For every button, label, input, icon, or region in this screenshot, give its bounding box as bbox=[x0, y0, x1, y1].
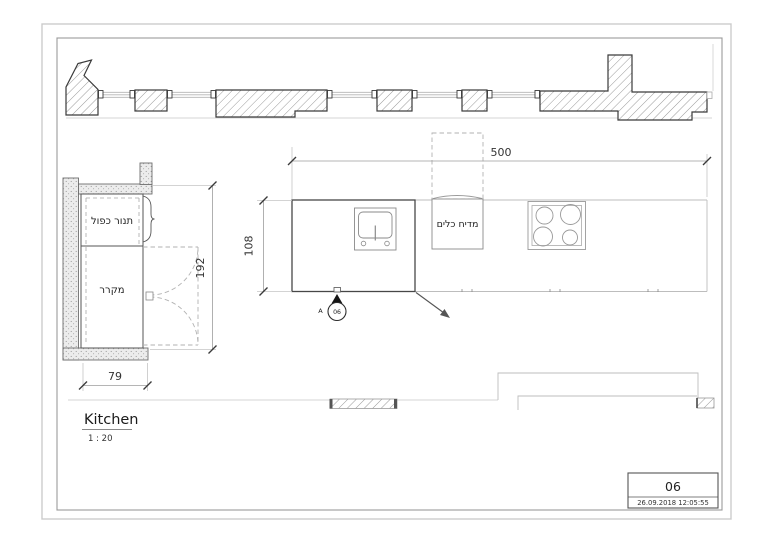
view-scale-text: 1 : 20 bbox=[88, 434, 113, 444]
hood-dashed-unit bbox=[432, 133, 483, 199]
dim-192: 192 bbox=[150, 182, 217, 354]
sink-symbol bbox=[355, 208, 397, 250]
title-block: 06 26.09.2018 12:05:55 bbox=[628, 473, 718, 508]
kitchen-plan-svg: תנור כפול מקרר מדיח כלי bbox=[0, 0, 768, 543]
fridge-door-swing bbox=[143, 247, 198, 345]
dim-79-text: 79 bbox=[108, 370, 122, 383]
window-3 bbox=[328, 91, 377, 99]
cooktop-symbol bbox=[528, 202, 586, 250]
sheet-number: 06 bbox=[665, 479, 681, 494]
view-title-text: Kitchen bbox=[84, 412, 139, 428]
window-2 bbox=[168, 91, 216, 99]
wall-pier-2 bbox=[216, 90, 327, 117]
tall-cabinet: תנור כפול מקרר bbox=[81, 194, 155, 348]
wall-right-end-jamb bbox=[707, 92, 712, 99]
section-letter: A bbox=[318, 307, 323, 315]
section-marker: 06 A bbox=[318, 288, 346, 321]
dishwasher-label: מדיח כלים bbox=[437, 219, 479, 230]
bottom-right-wall bbox=[697, 398, 714, 408]
island-counter bbox=[292, 200, 415, 292]
oven-handle-symbol bbox=[143, 196, 155, 242]
dim-500: 500 bbox=[288, 146, 711, 199]
dim-500-text: 500 bbox=[491, 146, 512, 159]
wall-pier-1 bbox=[135, 90, 167, 111]
top-wall bbox=[66, 55, 712, 120]
dishwasher: מדיח כלים bbox=[432, 199, 483, 249]
door-hinge bbox=[146, 292, 153, 300]
wall-pier-3 bbox=[377, 90, 412, 111]
dim-108-text: 108 bbox=[243, 236, 256, 257]
wall-pier-4 bbox=[462, 90, 487, 111]
dim-192-text: 192 bbox=[194, 258, 207, 279]
window-1 bbox=[99, 91, 135, 99]
bottom-wall bbox=[330, 373, 715, 410]
dim-108: 108 bbox=[243, 197, 293, 296]
drawing-sheet: תנור כפול מקרר מדיח כלי bbox=[0, 0, 768, 543]
sheet-timestamp: 26.09.2018 12:05:55 bbox=[637, 499, 709, 507]
section-number: 06 bbox=[333, 309, 341, 316]
fridge-label: מקרר bbox=[99, 285, 124, 296]
dim-79: 79 bbox=[79, 363, 152, 391]
window-5 bbox=[488, 91, 540, 99]
wall-break-segment bbox=[66, 60, 98, 115]
wall-right-with-column bbox=[540, 55, 707, 120]
window-4 bbox=[413, 91, 462, 99]
leader-arrow bbox=[416, 293, 450, 319]
bottom-lintel bbox=[330, 399, 397, 409]
view-title: Kitchen 1 : 20 bbox=[82, 412, 139, 444]
oven-label: תנור כפול bbox=[91, 216, 133, 227]
